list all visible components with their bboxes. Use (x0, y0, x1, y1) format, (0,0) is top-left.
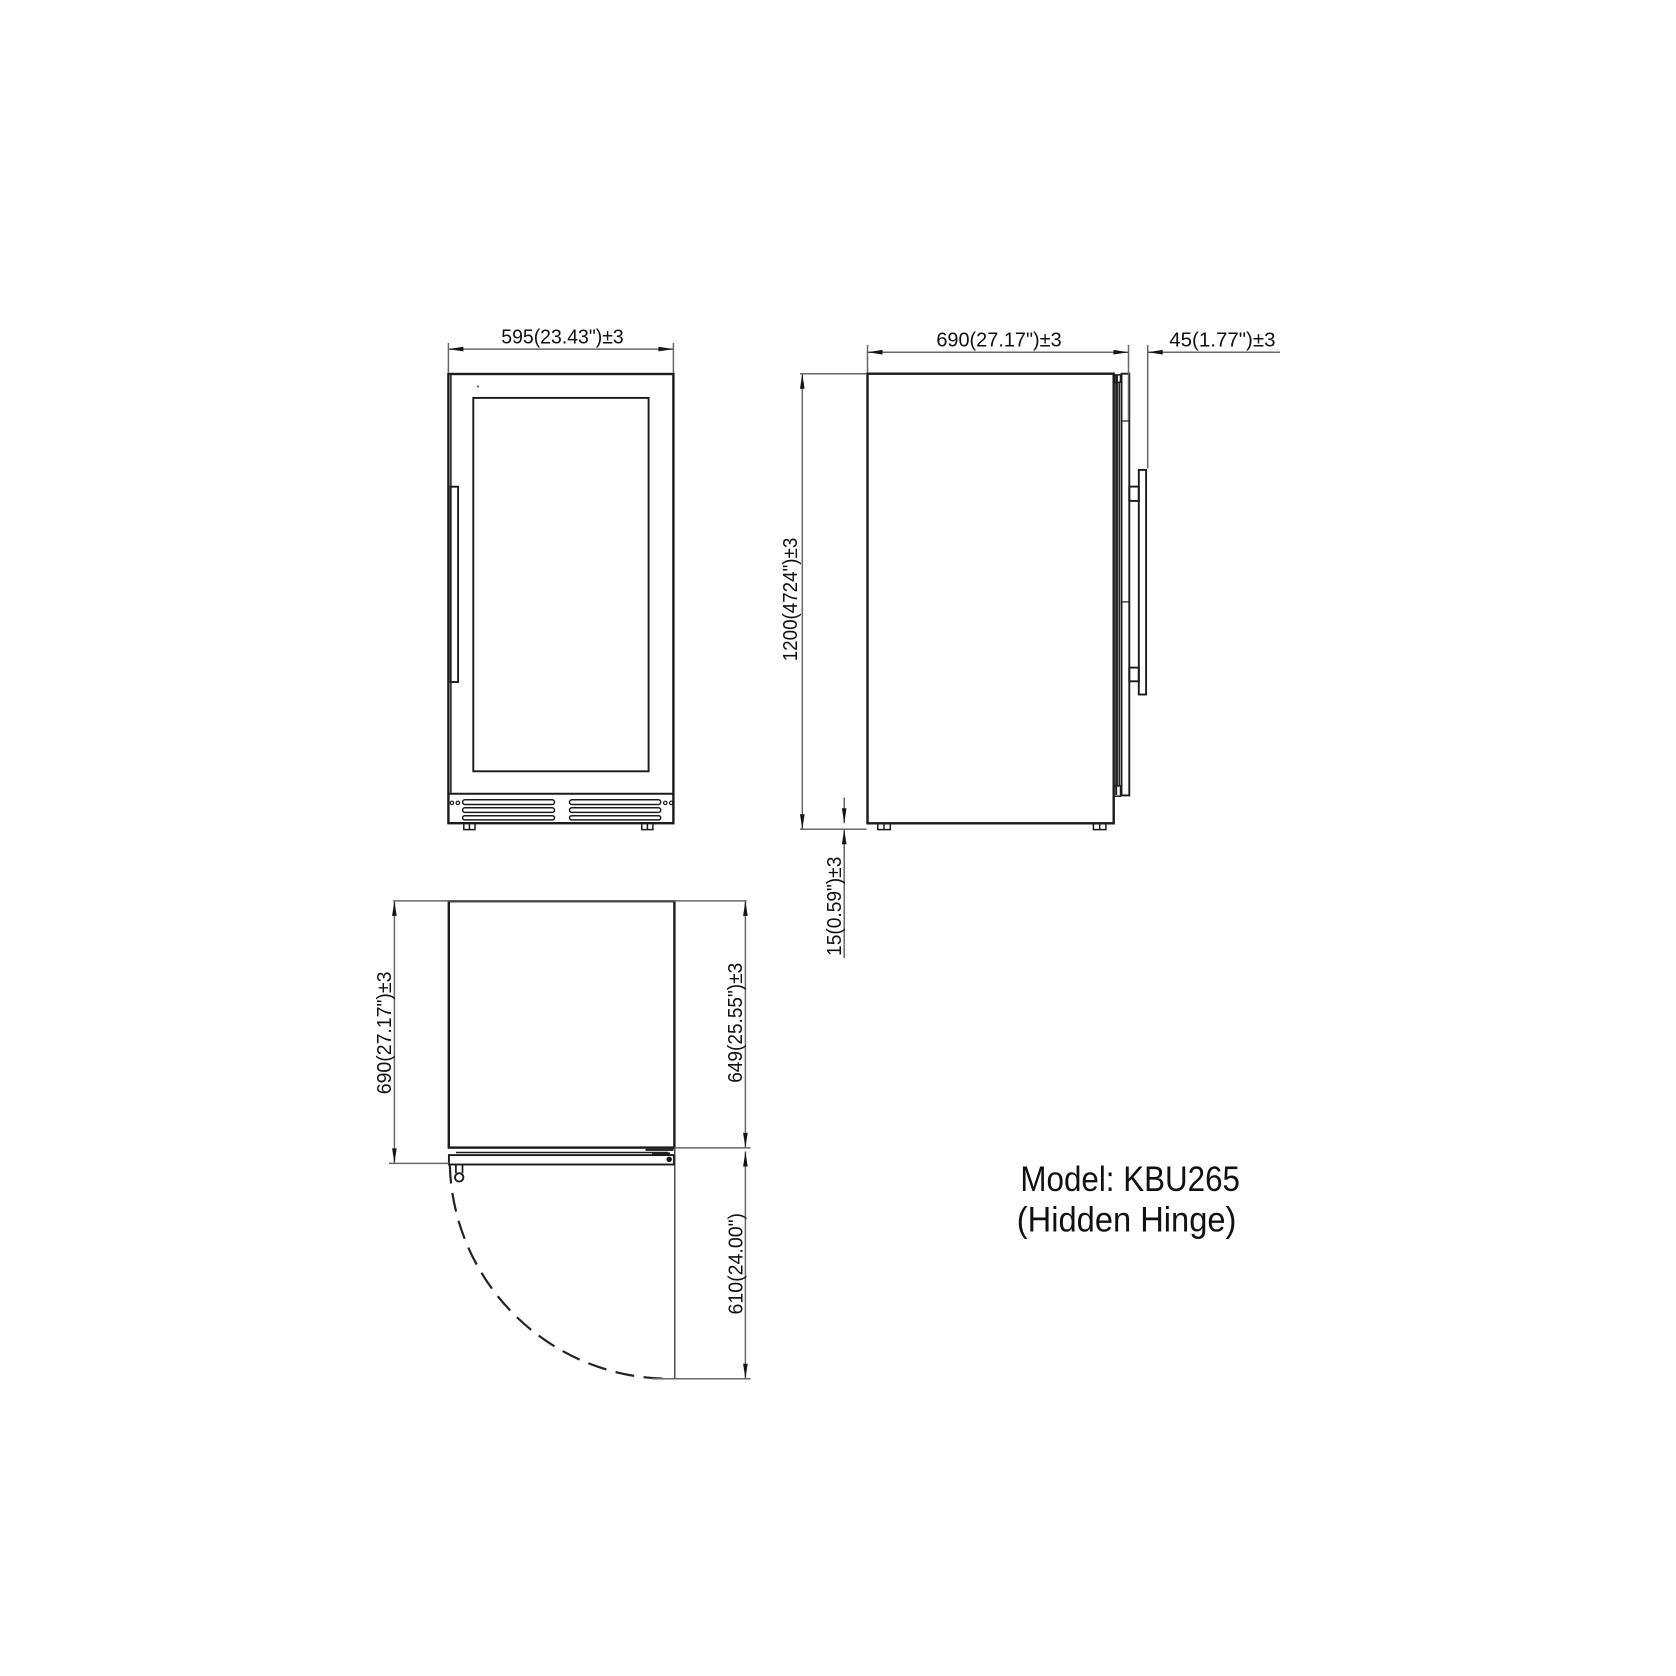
svg-text:(Hidden Hinge): (Hidden Hinge) (1017, 1201, 1237, 1240)
svg-text:690(27.17")±3: 690(27.17")±3 (936, 329, 1061, 352)
svg-text:595(23.43")±3: 595(23.43")±3 (501, 326, 624, 349)
svg-text:Model: KBU265: Model: KBU265 (1020, 1160, 1240, 1199)
svg-text:610(24.00"): 610(24.00") (725, 1213, 748, 1315)
svg-text:45(1.77")±3: 45(1.77")±3 (1169, 329, 1275, 352)
svg-text:15(0.59")±3: 15(0.59")±3 (823, 857, 846, 956)
svg-text:649(25.55")±3: 649(25.55")±3 (724, 963, 747, 1083)
svg-text:690(27.17")±3: 690(27.17")±3 (373, 972, 396, 1095)
svg-text:1200(4724")±3: 1200(4724")±3 (779, 538, 802, 662)
